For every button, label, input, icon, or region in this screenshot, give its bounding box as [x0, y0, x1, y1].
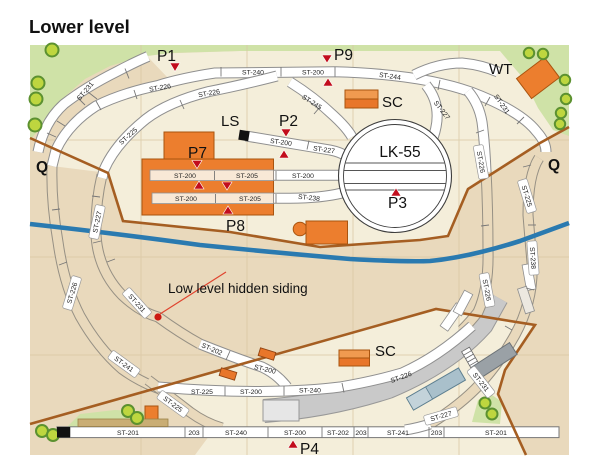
svg-text:Q: Q — [548, 157, 560, 174]
svg-text:ST-200: ST-200 — [292, 173, 314, 180]
svg-text:ST-240: ST-240 — [242, 69, 264, 76]
svg-text:WT: WT — [489, 61, 512, 78]
svg-text:ST-200: ST-200 — [174, 173, 196, 180]
svg-text:SC: SC — [382, 94, 403, 111]
svg-text:SC: SC — [375, 343, 396, 360]
svg-text:ST-205: ST-205 — [236, 173, 258, 180]
svg-text:ST-200: ST-200 — [175, 196, 197, 203]
svg-text:LK-55: LK-55 — [379, 144, 420, 161]
svg-text:Q: Q — [36, 159, 48, 176]
svg-text:ST-240: ST-240 — [299, 387, 321, 394]
svg-text:ST-241: ST-241 — [387, 430, 409, 437]
svg-text:ST-201: ST-201 — [117, 430, 139, 437]
svg-text:ST-201: ST-201 — [485, 430, 507, 437]
svg-text:Lower level: Lower level — [29, 16, 130, 37]
svg-text:P7: P7 — [188, 145, 207, 162]
svg-text:203: 203 — [431, 430, 443, 437]
svg-text:P8: P8 — [226, 218, 245, 235]
svg-text:ST-202: ST-202 — [327, 430, 349, 437]
svg-text:ST-200: ST-200 — [240, 389, 262, 396]
svg-text:ST-200: ST-200 — [302, 69, 324, 76]
svg-text:ST-200: ST-200 — [284, 430, 306, 437]
svg-text:ST-225: ST-225 — [191, 389, 213, 396]
svg-text:203: 203 — [188, 430, 200, 437]
svg-text:P2: P2 — [279, 113, 298, 130]
svg-text:P4: P4 — [300, 441, 319, 458]
svg-text:LS: LS — [221, 113, 239, 130]
svg-text:P1: P1 — [157, 48, 176, 65]
svg-text:ST-205: ST-205 — [239, 196, 261, 203]
svg-text:Low level hidden siding: Low level hidden siding — [168, 281, 308, 296]
svg-text:P9: P9 — [334, 47, 353, 64]
svg-text:203: 203 — [355, 430, 367, 437]
svg-text:ST-240: ST-240 — [225, 430, 247, 437]
svg-text:P3: P3 — [388, 195, 407, 212]
